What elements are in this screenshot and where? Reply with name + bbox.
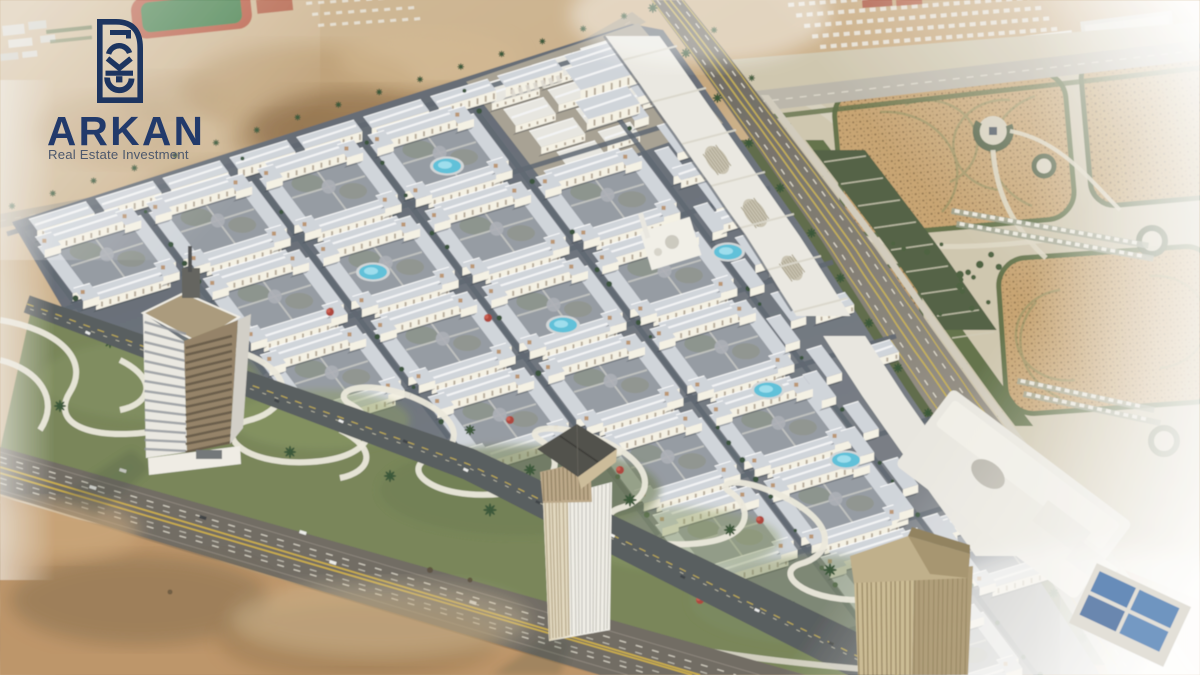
svg-text:Real Estate Investment: Real Estate Investment (48, 147, 189, 162)
